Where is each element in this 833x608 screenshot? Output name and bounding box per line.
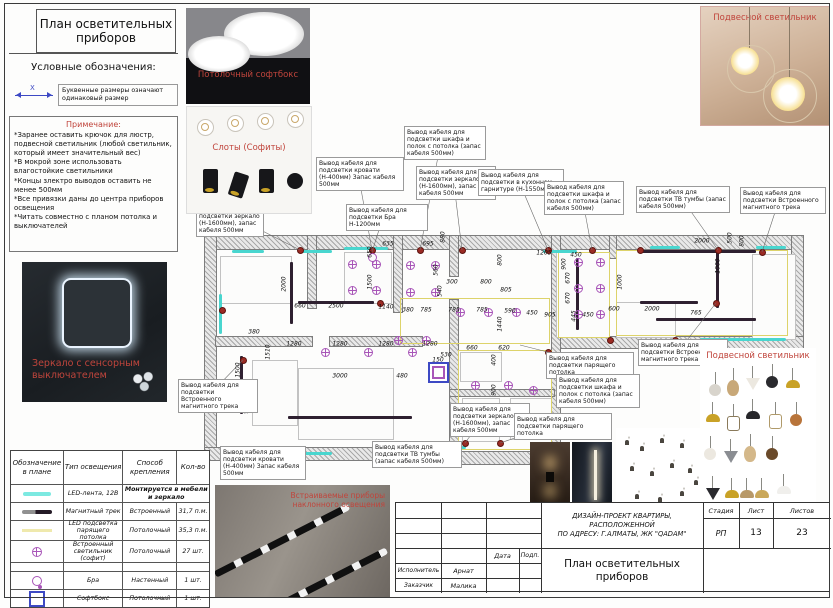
dimension-label: 450: [582, 312, 593, 319]
mini-lamp-icon: [640, 446, 644, 451]
dimension-label: 905: [544, 312, 555, 319]
spotlight-symbol: [364, 348, 373, 357]
stage-value: РП: [703, 518, 739, 548]
cable-callout: Вывод кабеля для подсветки Встроенного м…: [178, 379, 258, 413]
mini-lamp-icon: [660, 438, 664, 443]
sign-label: Подп.: [519, 548, 541, 563]
pendant-stem: [752, 366, 753, 378]
pendant-stem: [792, 368, 793, 380]
dimension-label: 450: [570, 252, 581, 259]
dimension-label: 540: [437, 285, 444, 296]
dimension-label: 650: [367, 246, 374, 257]
arrow-left-icon: [13, 92, 21, 98]
black-spot-icon: [228, 171, 250, 198]
notes-list: *Заранее оставить крючок для люстр, подв…: [14, 131, 173, 231]
dimension-label: 2000: [281, 276, 288, 291]
note-line: *Концы злектро выводов оставить не менее…: [14, 177, 173, 195]
sheets-value: 23: [773, 518, 831, 548]
glow-bulb-icon: [771, 77, 805, 111]
mini-lamp-icon: [635, 494, 639, 499]
stage-label: Стадия: [703, 503, 739, 518]
dimension-label: 500: [727, 232, 734, 243]
magnetic-track: [640, 250, 756, 253]
dimension-label: 785: [448, 307, 459, 314]
dimension-label: 590: [504, 308, 515, 315]
mirror-photo: Зеркало с сенсорным выключателем: [22, 262, 167, 402]
table-header-cell: Тип освещения: [63, 451, 123, 484]
cable-outlet-symbol: [759, 249, 766, 256]
page-title-text: План осветительных приборов: [37, 17, 175, 46]
dimension-label: 3000: [332, 373, 347, 380]
table-row: Встроенный светильник (софит)Потолочный2…: [11, 540, 209, 562]
dimension-label: 560: [433, 264, 440, 275]
pendant-collage-caption: Подвесной светильник: [700, 351, 816, 361]
led-strip: [232, 250, 264, 253]
dimension-label: 380: [402, 307, 413, 314]
table-cell-mount: Монтируется в мебели и зеркало: [122, 485, 209, 502]
mini-lamp-icon: [625, 440, 629, 445]
dimension-label: 800: [497, 254, 504, 265]
pendant-stem: [772, 364, 773, 376]
dimension-x-label: X: [30, 84, 35, 92]
table-row: БраНастенный1 шт.: [11, 571, 209, 589]
pendant-lamp-icon: [724, 451, 738, 463]
dimension-label: 2000: [694, 238, 709, 245]
dimension-label: 900: [491, 384, 498, 395]
date-label: Дата: [486, 548, 519, 563]
legend-table: Обозначение в планеТип освещенияСпособ к…: [10, 450, 210, 608]
dimension-label: 450: [526, 310, 537, 317]
cable-callout: Вывод кабеля для подсветки Встроенного м…: [740, 187, 826, 214]
dimension-label: 1500: [235, 362, 242, 377]
dimension-label: 785: [476, 307, 487, 314]
pendant-lamp-icon: [740, 490, 754, 498]
sheet-value: 13: [739, 518, 773, 548]
dimension-symbol: X: [13, 86, 55, 102]
dimension-label: 600: [608, 306, 619, 313]
white-spot-icon: [257, 113, 274, 130]
softbox-symbol: [428, 362, 449, 383]
table-header-cell: Кол-во: [176, 451, 209, 484]
mini-lamp-icon: [670, 463, 674, 468]
spotlight-symbol: [408, 348, 417, 357]
spot-symbol: [11, 541, 63, 562]
black-spot-icon: [203, 169, 218, 193]
dimension-label: 445: [571, 310, 578, 321]
note-line: *Заранее оставить крючок для люстр, подв…: [14, 131, 173, 158]
cable-callout: Вывод кабеля для подсветки шкафа и полок…: [544, 181, 624, 215]
dimension-label: 785: [420, 307, 431, 314]
pendant-stem: [731, 478, 732, 490]
dimension-label: 300: [446, 279, 457, 286]
wall-segment: [308, 236, 316, 308]
spotlight-symbol: [471, 381, 480, 390]
cable-outlet-symbol: [607, 337, 614, 344]
pendant-stem: [775, 402, 776, 414]
pendant-photo-caption: Подвесной светильник: [701, 13, 829, 23]
table-cell-qty: 31,7 п.м.: [176, 503, 209, 520]
cable-callout: Вывод кабеля для подсветки ТВ тумбы (зап…: [636, 186, 730, 213]
dimension-label: 805: [500, 287, 511, 294]
spotlight-symbol: [596, 284, 605, 293]
dimension-label: 1280: [332, 341, 347, 348]
cable-callout: Вывод кабеля для подсветки шкафа и полок…: [404, 126, 486, 160]
pendant-stem: [783, 474, 784, 486]
dimension-label: 670: [565, 292, 572, 303]
table-cell-mount: [122, 563, 176, 571]
spotlight-symbol: [394, 336, 403, 345]
pendant-lamp-icon: [704, 448, 716, 460]
cable-outlet-symbol: [297, 247, 304, 254]
spotlight-symbol: [406, 261, 415, 270]
table-cell-mount: Потолочный: [122, 590, 176, 607]
dimension-label: 880: [440, 231, 447, 242]
dimension-label: 660: [294, 303, 305, 310]
note-line: *Читать совместно с планом потолка и вык…: [14, 213, 173, 231]
dimension-label: 635: [382, 241, 393, 248]
dimension-label: 2500: [328, 303, 343, 310]
spotlight-symbol: [529, 386, 538, 395]
pendant-lamp-icon: [766, 376, 778, 388]
table-cell-qty: 1 шт.: [176, 590, 209, 607]
dimension-label: 765: [690, 310, 701, 317]
table-cell-type: Встроенный светильник (софит): [63, 541, 123, 562]
dimension-label: 480: [396, 373, 407, 380]
led-strip: [219, 294, 222, 334]
magnetic-track: [290, 262, 293, 324]
project-name: ДИЗАЙН-ПРОЕКТ КВАРТИРЫ, РАСПОЛОЖЕННОЙ ПО…: [543, 504, 701, 547]
table-header-cell: Способ крепления: [122, 451, 176, 484]
table-cell-mount: Встроенный: [122, 503, 176, 520]
dimension-label: 670: [565, 272, 572, 283]
dimension-label: 1280: [286, 341, 301, 348]
white-spot-icon: [227, 115, 244, 132]
white-spot-icon: [287, 111, 304, 128]
mini-lamp-icon: [680, 443, 684, 448]
cable-callout: Вывод кабеля для подсветки шкафа и полок…: [556, 374, 640, 408]
pendant-lamp-icon: [786, 380, 800, 388]
pendant-lamp-icon: [744, 446, 756, 462]
dimension-label: 380: [248, 329, 259, 336]
pendant-stem: [761, 478, 762, 490]
cable-callout: Вывод кабеля для подсветки кровати (Н-40…: [316, 157, 404, 191]
table-row: LED подсветка парящего потолкаПотолочный…: [11, 520, 209, 540]
empty-symbol: [11, 563, 63, 571]
table-cell-mount: Настенный: [122, 572, 176, 589]
dimension-label: 620: [498, 345, 509, 352]
dimension-label: 1440: [497, 316, 504, 331]
strip-light-icon: [594, 450, 597, 500]
arrow-right-icon: [47, 92, 55, 98]
track-lighting-photo: Встраиваемые приборы наклонного освещени…: [215, 485, 390, 597]
magnetic-track: [656, 318, 756, 321]
table-cell-type: Софтбокс: [63, 590, 123, 607]
table-row: [11, 562, 209, 571]
executor-label: Исполнитель: [396, 563, 441, 578]
dimension-label: 2000: [644, 306, 659, 313]
track-symbol: [11, 503, 63, 520]
pendant-photo: Подвесной светильник: [700, 6, 830, 126]
slots-caption: Слоты (Софиты): [187, 143, 311, 153]
dimension-label: 1000: [715, 258, 722, 273]
wall-segment: [450, 236, 458, 276]
cable-outlet-symbol: [459, 247, 466, 254]
dimension-label: 1140: [378, 304, 393, 311]
pendant-stem: [733, 368, 734, 380]
table-header-cell: Обозначение в плане: [11, 451, 63, 484]
dimension-label: 1510: [265, 344, 272, 359]
mirror-image: [62, 278, 132, 348]
pendant-lamp-icon: [769, 414, 782, 429]
pendant-stem: [712, 402, 713, 414]
led-ceiling-outline: [616, 250, 788, 336]
ledceil-symbol: [11, 521, 63, 540]
dimension-label: 1205: [536, 250, 551, 257]
note-line: *В мокрой зоне использовать влагостойкие…: [14, 158, 173, 176]
mini-lamp-icon: [694, 480, 698, 485]
track-bar-icon: [215, 503, 350, 577]
dimension-label: 800: [739, 235, 746, 246]
title-block: Стадия Лист Листов РП 13 23 ДИЗАЙН-ПРОЕК…: [395, 502, 830, 592]
cable-outlet-symbol: [497, 440, 504, 447]
table-cell-mount: Потолочный: [122, 541, 176, 562]
notes-box: Примечание: *Заранее оставить крючок для…: [9, 116, 178, 252]
pendant-stem: [746, 478, 747, 490]
table-cell-type: Бра: [63, 572, 123, 589]
dimension-label: 800: [480, 279, 491, 286]
spotlight-symbol: [348, 260, 357, 269]
softbox-symbol: [11, 590, 63, 607]
dimension-label: 1280: [422, 341, 437, 348]
spotlight-symbol: [321, 348, 330, 357]
dimension-label: 1000: [617, 274, 624, 289]
table-row: Обозначение в планеТип освещенияСпособ к…: [11, 451, 209, 484]
led-symbol: [11, 485, 63, 502]
mini-lamp-icon: [630, 466, 634, 471]
legend-header: Условные обозначения:: [9, 62, 178, 73]
table-cell-qty: 27 шт.: [176, 541, 209, 562]
client-value: Малика: [441, 578, 486, 593]
pendant-lamp-icon: [746, 378, 760, 390]
pendant-lamp-icon: [766, 448, 778, 460]
pendant-lamp-icon: [777, 486, 791, 494]
pendant-stem: [712, 476, 713, 488]
notes-header: Примечание:: [14, 120, 173, 129]
page-title: План осветительных приборов: [36, 9, 176, 53]
table-cell-qty: 35,3 п.м.: [176, 521, 209, 540]
dimension-label: 900: [561, 258, 568, 269]
spotlight-symbol: [596, 310, 605, 319]
table-cell-type: [63, 563, 123, 571]
spotlight-symbol: [504, 381, 513, 390]
track-bar-icon: [252, 547, 389, 597]
dimension-label: 400: [491, 354, 498, 365]
pendant-stem: [715, 372, 716, 384]
dimension-label: 530: [440, 352, 451, 359]
pendant-lamp-icon: [706, 414, 720, 422]
table-cell-type: LED подсветка парящего потолка: [63, 521, 123, 540]
table-row: СофтбоксПотолочный1 шт.: [11, 589, 209, 607]
spotlight-symbol: [406, 288, 415, 297]
pendant-stem: [710, 436, 711, 448]
sconce-glow-icon: [546, 472, 554, 482]
cable-outlet-symbol: [637, 247, 644, 254]
black-spot-icon: [259, 169, 274, 193]
pendant-stem: [772, 436, 773, 448]
sheet-label: Лист: [739, 503, 773, 518]
dimension-note: Буквенные размеры означают одинаковый ра…: [58, 84, 178, 106]
glow-bulb-icon: [731, 47, 759, 75]
note-line: *Все привязки даны до центра приборов ос…: [14, 195, 173, 213]
softbox-caption: Потолочный софтбокс: [186, 70, 310, 80]
pendant-stem: [733, 404, 734, 416]
dimension-label: 660: [466, 345, 477, 352]
dimension-label: 1280: [378, 341, 393, 348]
pendant-lamp-icon: [727, 380, 739, 396]
led-strip: [650, 246, 680, 249]
pendant-lamp-icon: [706, 488, 720, 500]
mini-lamp-icon: [650, 471, 654, 476]
softbox-photo: Потолочный софтбокс: [186, 8, 310, 104]
spotlight-symbol: [596, 258, 605, 267]
pendant-stem: [796, 402, 797, 414]
pendant-stem: [752, 399, 753, 411]
pendant-lamp-icon: [725, 490, 739, 498]
table-row: Магнитный трекВстроенный31,7 п.м.: [11, 502, 209, 520]
white-spot-icon: [197, 119, 214, 136]
table-cell-mount: Потолочный: [122, 521, 176, 540]
wall-segment: [205, 236, 803, 249]
cable-callout: Вывод кабеля для подсветки Бра Н-1200мм: [346, 204, 428, 231]
client-label: Заказчик: [396, 578, 441, 593]
slots-photo: Слоты (Софиты): [186, 106, 312, 214]
black-spot-round-icon: [287, 173, 303, 189]
mini-lamp-icon: [680, 491, 684, 496]
sconce-symbol-stem: [372, 261, 373, 266]
cable-outlet-symbol: [417, 247, 424, 254]
pendant-lamp-icon: [709, 384, 721, 396]
wall-segment: [205, 236, 216, 460]
magnetic-track: [640, 301, 698, 304]
mini-lamp-icon: [688, 468, 692, 473]
cable-outlet-symbol: [462, 440, 469, 447]
pendant-lamp-icon: [727, 416, 740, 431]
bra-symbol: [11, 572, 63, 589]
pendant-wire: [789, 7, 790, 77]
softbox-light-small: [188, 36, 250, 72]
sheets-label: Листов: [773, 503, 831, 518]
flower-decoration: [130, 370, 156, 392]
cable-callout: Вывод кабеля для подсветки ТВ тумбы (зап…: [372, 441, 462, 468]
dimension-label: 695: [422, 241, 433, 248]
table-cell-type: Магнитный трек: [63, 503, 123, 520]
pendant-lamp-icon: [755, 490, 769, 498]
pendant-lamp-icon: [746, 411, 760, 419]
pendant-stem: [730, 439, 731, 451]
cable-outlet-symbol: [589, 247, 596, 254]
magnetic-track: [288, 416, 412, 419]
table-cell-qty: [176, 563, 209, 571]
spotlight-symbol: [348, 286, 357, 295]
dimension-label: 1500: [367, 274, 374, 289]
mini-lamp-icon: [658, 497, 662, 502]
cable-outlet-symbol: [713, 300, 720, 307]
table-row: LED-лента, 12ВМонтируется в мебели и зер…: [11, 484, 209, 502]
executor-value: Арнат: [441, 563, 486, 578]
cable-outlet-symbol: [219, 307, 226, 314]
cable-outlet-symbol: [715, 247, 722, 254]
table-cell-type: LED-лента, 12В: [63, 485, 123, 502]
spotlight-symbol: [574, 284, 583, 293]
pendant-stem: [750, 434, 751, 446]
pendant-lamp-icon: [790, 414, 802, 426]
cable-callout: Вывод кабеля для подсветки парящего пото…: [514, 413, 612, 440]
table-cell-qty: 1 шт.: [176, 572, 209, 589]
divider: [9, 53, 178, 54]
track-photo-caption: Встраиваемые приборы наклонного освещени…: [273, 491, 385, 510]
cable-callout: Вывод кабеля для подсветки кровати (Н-40…: [220, 446, 306, 480]
spotlight-symbol: [574, 258, 583, 267]
sheet-title: План осветительных приборов: [543, 549, 701, 592]
